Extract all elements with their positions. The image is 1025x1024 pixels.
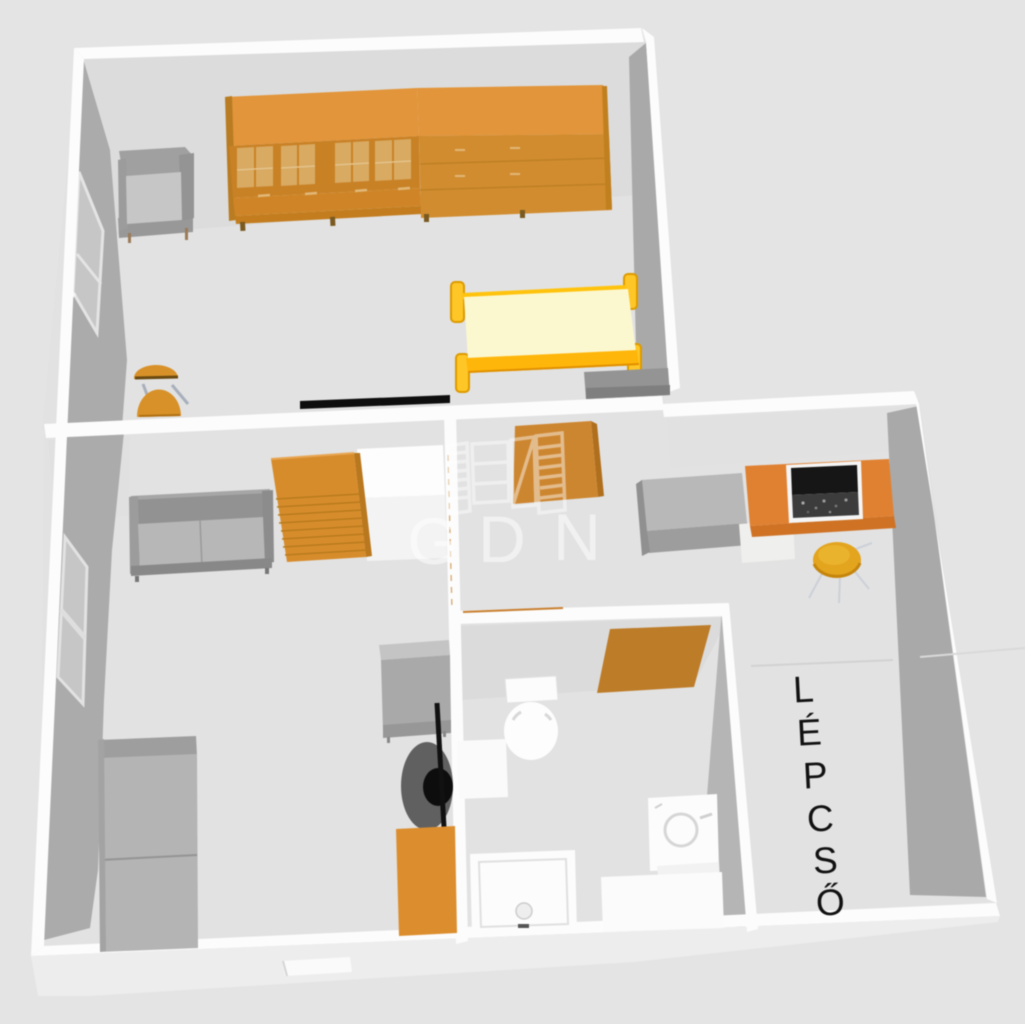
svg-text:P: P — [802, 754, 829, 796]
svg-text:L: L — [792, 669, 815, 711]
svg-text:G: G — [407, 504, 458, 578]
svg-text:D: D — [478, 502, 526, 576]
svg-text:C: C — [806, 797, 835, 839]
svg-text:Ő: Ő — [815, 881, 846, 923]
svg-text:S: S — [812, 839, 839, 881]
svg-text:É: É — [796, 711, 823, 753]
svg-text:N: N — [553, 500, 601, 574]
